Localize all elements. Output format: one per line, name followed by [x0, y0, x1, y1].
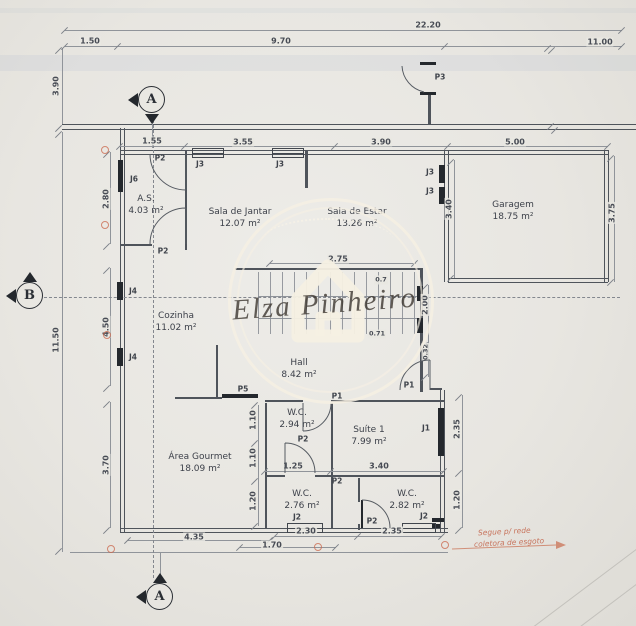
section-arrow-b-up — [23, 272, 37, 282]
floorplan-photo: 22.20 1.50 9.70 11.00 3.90 11.50 1.55 3.… — [0, 0, 636, 626]
door-swing-p1-corridor — [400, 360, 430, 390]
door-swing-p2-top — [150, 154, 186, 190]
section-arrow-a-top-down — [145, 114, 159, 124]
section-arrow-a-bottom-up — [153, 573, 167, 583]
door-swing-p2-bottom — [150, 208, 186, 244]
door-swing-p3 — [402, 66, 424, 92]
sewage-arrow-head — [556, 541, 566, 549]
plan-symbols — [0, 0, 636, 626]
door-swing-p2-wc — [285, 443, 315, 473]
marker-circle-orange — [441, 541, 449, 549]
section-arrow-b-left — [6, 289, 16, 303]
marker-circle-orange — [101, 146, 109, 154]
marker-circle-orange — [103, 331, 111, 339]
section-arrow-a-top-left — [128, 93, 138, 107]
marker-circle-orange — [107, 545, 115, 553]
section-arrow-a-bottom-left — [136, 590, 146, 604]
marker-circle-orange — [101, 221, 109, 229]
door-swing-p2-lower — [362, 500, 390, 528]
door-swing-p1-wc — [303, 403, 331, 431]
marker-circle-orange — [314, 543, 322, 551]
